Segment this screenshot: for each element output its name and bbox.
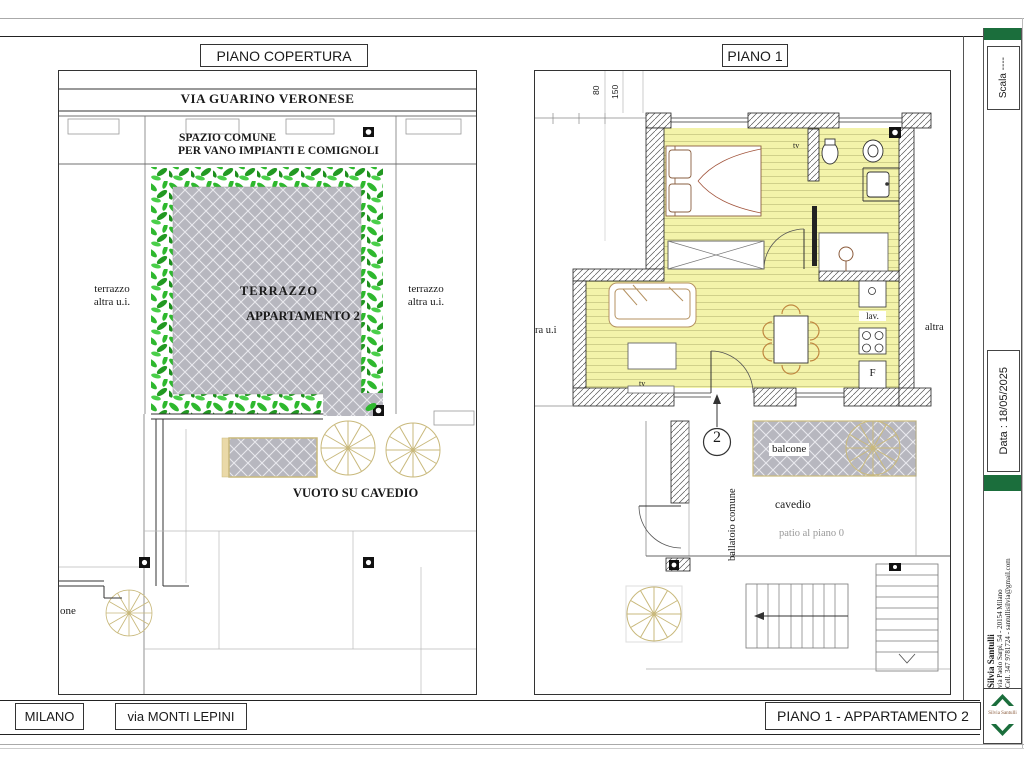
- coffee-table: [628, 343, 676, 369]
- scale-label: Scala ----: [998, 57, 1009, 98]
- dining-table: [774, 316, 808, 363]
- contact-block: Silvia Santulli via Paolo Sarpi, 54 - 20…: [986, 494, 1012, 688]
- drawing-sheet: PIANO COPERTURA: [0, 0, 1024, 768]
- staircase-right: [876, 564, 938, 671]
- logo-box: Silvia Santulli: [983, 688, 1022, 744]
- terrace-other-unit-left: terrazzo altra u.i.: [77, 283, 147, 308]
- sofa: [609, 283, 696, 327]
- terrace-other-unit-right: terrazzo altra u.i.: [391, 283, 461, 308]
- scale-box: Scala ----: [987, 46, 1020, 110]
- street-label: VIA GUARINO VERONESE: [59, 92, 476, 107]
- left-plan-piano-copertura: VIA GUARINO VERONESE SPAZIO COMUNE PER V…: [58, 70, 477, 695]
- date-label: Data : 18/05/2025: [998, 367, 1010, 454]
- footer-line-bottom: [0, 734, 980, 735]
- contact-address: via Paolo Sarpi, 54 - 20154 Milano: [996, 494, 1004, 688]
- common-space-label-2: PER VANO IMPIANTI E COMIGNOLI: [178, 145, 379, 158]
- right-plan-title: PIANO 1: [727, 48, 782, 64]
- dim-label-150: 150: [611, 85, 621, 99]
- lower-balcony-paving: [229, 438, 317, 477]
- left-plan-drawing: [59, 71, 476, 694]
- frame-line-right: [963, 36, 964, 700]
- spiral-stair: [627, 587, 681, 641]
- contact-name: Silvia Santulli: [986, 494, 996, 688]
- footer-street-label: via MONTI LEPINI: [128, 709, 235, 724]
- plan-title-box: PIANO 1 - APPARTAMENTO 2: [765, 702, 981, 730]
- spiral-stair: [846, 421, 900, 475]
- cavedio-label: cavedio: [775, 499, 811, 512]
- sidebar-green-bar-top: [984, 28, 1021, 40]
- contact-phone: Cell. 347 9781724 - santullisilvia@gmail…: [1004, 494, 1012, 688]
- tv-bathroom-label: tv: [793, 141, 799, 150]
- sheet-bottom-line-1: [0, 744, 1024, 745]
- terrace-label-1: TERRAZZO: [219, 284, 339, 298]
- right-plan-drawing: [535, 71, 950, 694]
- common-space-label-1: SPAZIO COMUNE: [179, 132, 276, 145]
- city-box: MILANO: [15, 703, 84, 730]
- clipped-balcone-label: one: [60, 605, 76, 618]
- patio-label: patio al piano 0: [779, 528, 844, 540]
- city-label: MILANO: [25, 709, 75, 724]
- footer-line-top: [0, 700, 980, 701]
- dim-label-80: 80: [592, 86, 602, 95]
- frame-line-top-black: [0, 36, 983, 37]
- logo-text: Silvia Santulli: [985, 711, 1020, 717]
- bed: [666, 146, 761, 216]
- balcony-label: balcone: [769, 443, 809, 456]
- right-plan-piano-1: 80 150 tv tv lav. F balcone cavedio pati…: [534, 70, 951, 695]
- other-unit-left-clipped: ra u.i: [535, 325, 557, 337]
- other-unit-right-clipped: altra: [925, 322, 944, 334]
- sidebar: Scala ---- Data : 18/05/2025 Silvia Sant…: [983, 28, 1022, 742]
- frame-line-top-gray: [0, 18, 1024, 19]
- left-plan-title-box: PIANO COPERTURA: [200, 44, 368, 67]
- spiral-stair: [106, 590, 152, 636]
- footer-plan-title: PIANO 1 - APPARTAMENTO 2: [777, 708, 969, 724]
- tv-living-label: tv: [639, 379, 645, 388]
- sliding-partition: [812, 206, 817, 266]
- sidebar-green-bar-mid: [984, 475, 1021, 491]
- shower-tray: [819, 233, 888, 271]
- fridge-label: F: [859, 367, 886, 380]
- spiral-stair: [386, 423, 440, 477]
- staircase-left: [746, 584, 848, 648]
- sink-label: lav.: [859, 311, 886, 321]
- roof-window: [434, 411, 474, 425]
- void-cavedio-label: VUOTO SU CAVEDIO: [293, 486, 418, 500]
- left-plan-title: PIANO COPERTURA: [216, 48, 351, 64]
- spiral-stair: [321, 421, 375, 475]
- tv-unit: [628, 386, 674, 393]
- walkway-label: ballatoio comune: [727, 461, 739, 561]
- date-box: Data : 18/05/2025: [987, 350, 1020, 472]
- right-plan-title-box: PIANO 1: [722, 44, 788, 67]
- terrace-label-2: APPARTAMENTO 2: [233, 309, 373, 323]
- sheet-edge-right: [1022, 18, 1023, 748]
- sheet-bottom-line-2: [0, 748, 1024, 749]
- street-box: via MONTI LEPINI: [115, 703, 247, 730]
- unit-number: 2: [703, 429, 731, 447]
